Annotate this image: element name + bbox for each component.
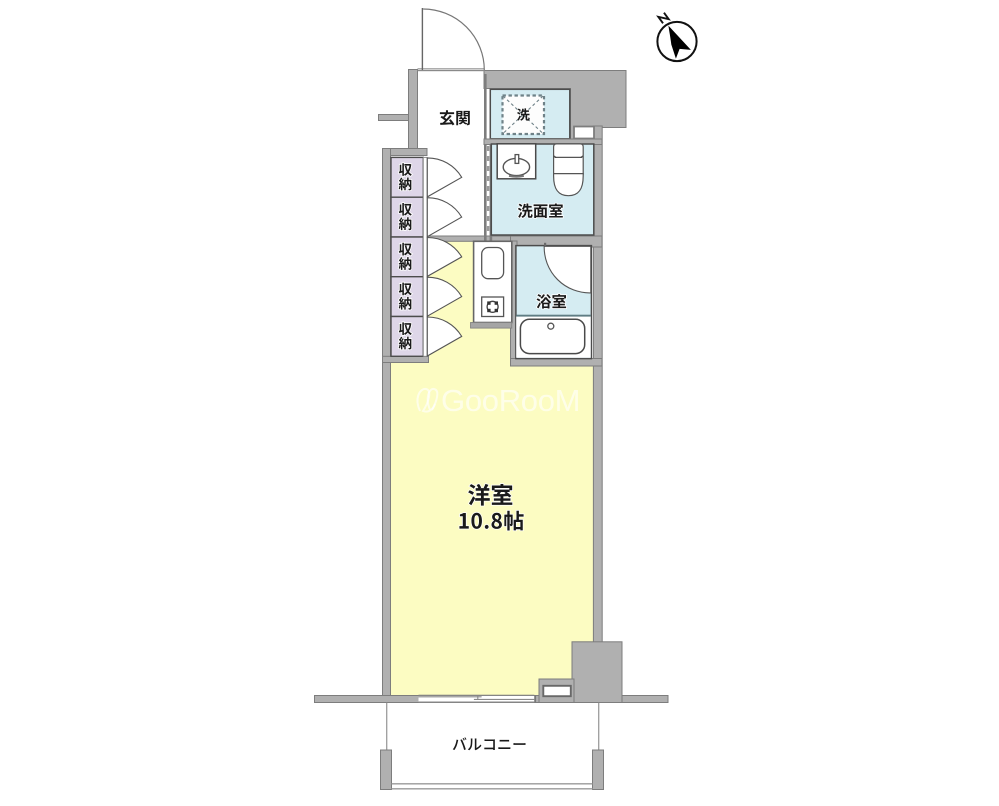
svg-text:GooRooM: GooRooM: [441, 383, 580, 418]
